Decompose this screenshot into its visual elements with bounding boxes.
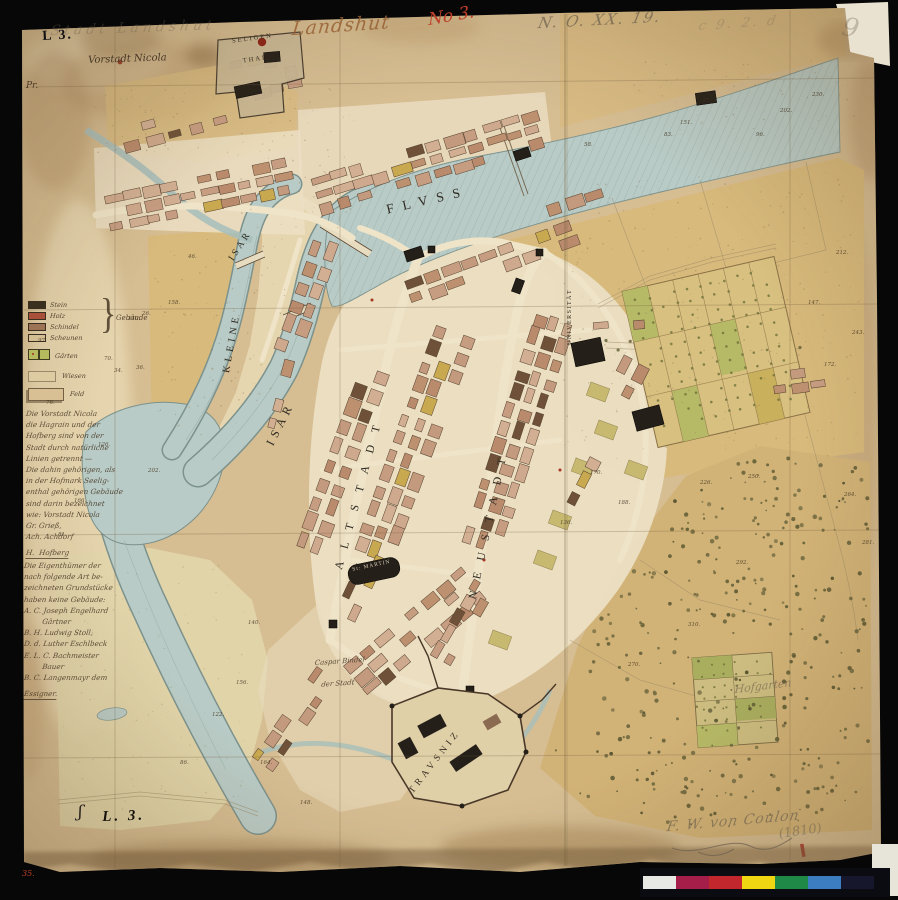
legend-label: Gärten (55, 352, 79, 360)
calibration-segment (808, 876, 841, 889)
legend-row-wiesen: Wiesen (28, 371, 156, 381)
calibration-segment (841, 876, 874, 889)
legend-row-schindel: Schindel (28, 322, 156, 332)
legend-brace-label: Gebäude (116, 314, 148, 322)
legend-label: Schindel (50, 323, 79, 331)
legend-label: Stein (50, 301, 68, 309)
legend-label: Feld (70, 390, 85, 398)
legend-label: Holz (50, 312, 66, 320)
legend-label: Wiesen (62, 372, 87, 380)
calibration-segment (643, 876, 676, 889)
legend-swatch-gaerten (28, 347, 50, 365)
calibration-segment (676, 876, 709, 889)
legend-swatch-holz (28, 312, 46, 320)
legend-label: Scheunen (50, 334, 83, 342)
legend-swatch-schindel (28, 323, 46, 331)
scanned-map-sheet: L 3. Stadt Landshut Vorstadt Nicola SELI… (0, 0, 898, 900)
legend: Stein Holz Schindel Scheunen } Gebäude G… (28, 300, 156, 400)
legend-row-feld: Feld (28, 389, 156, 399)
legend-row-stein: Stein (28, 300, 156, 310)
color-calibration-strip (640, 868, 890, 897)
legend-row-gaerten: Gärten (28, 351, 156, 361)
calibration-segment (709, 876, 742, 889)
legend-swatch-feld (28, 388, 64, 401)
legend-row-scheunen: Scheunen (28, 333, 156, 343)
legend-swatch-wiesen (28, 371, 56, 382)
legend-brace: } (100, 291, 116, 339)
legend-swatch-stein (28, 301, 46, 309)
calibration-segment (742, 876, 775, 889)
map-artwork (0, 0, 898, 900)
calibration-segment (775, 876, 808, 889)
legend-swatch-scheunen (28, 334, 46, 342)
vignette (0, 0, 898, 900)
